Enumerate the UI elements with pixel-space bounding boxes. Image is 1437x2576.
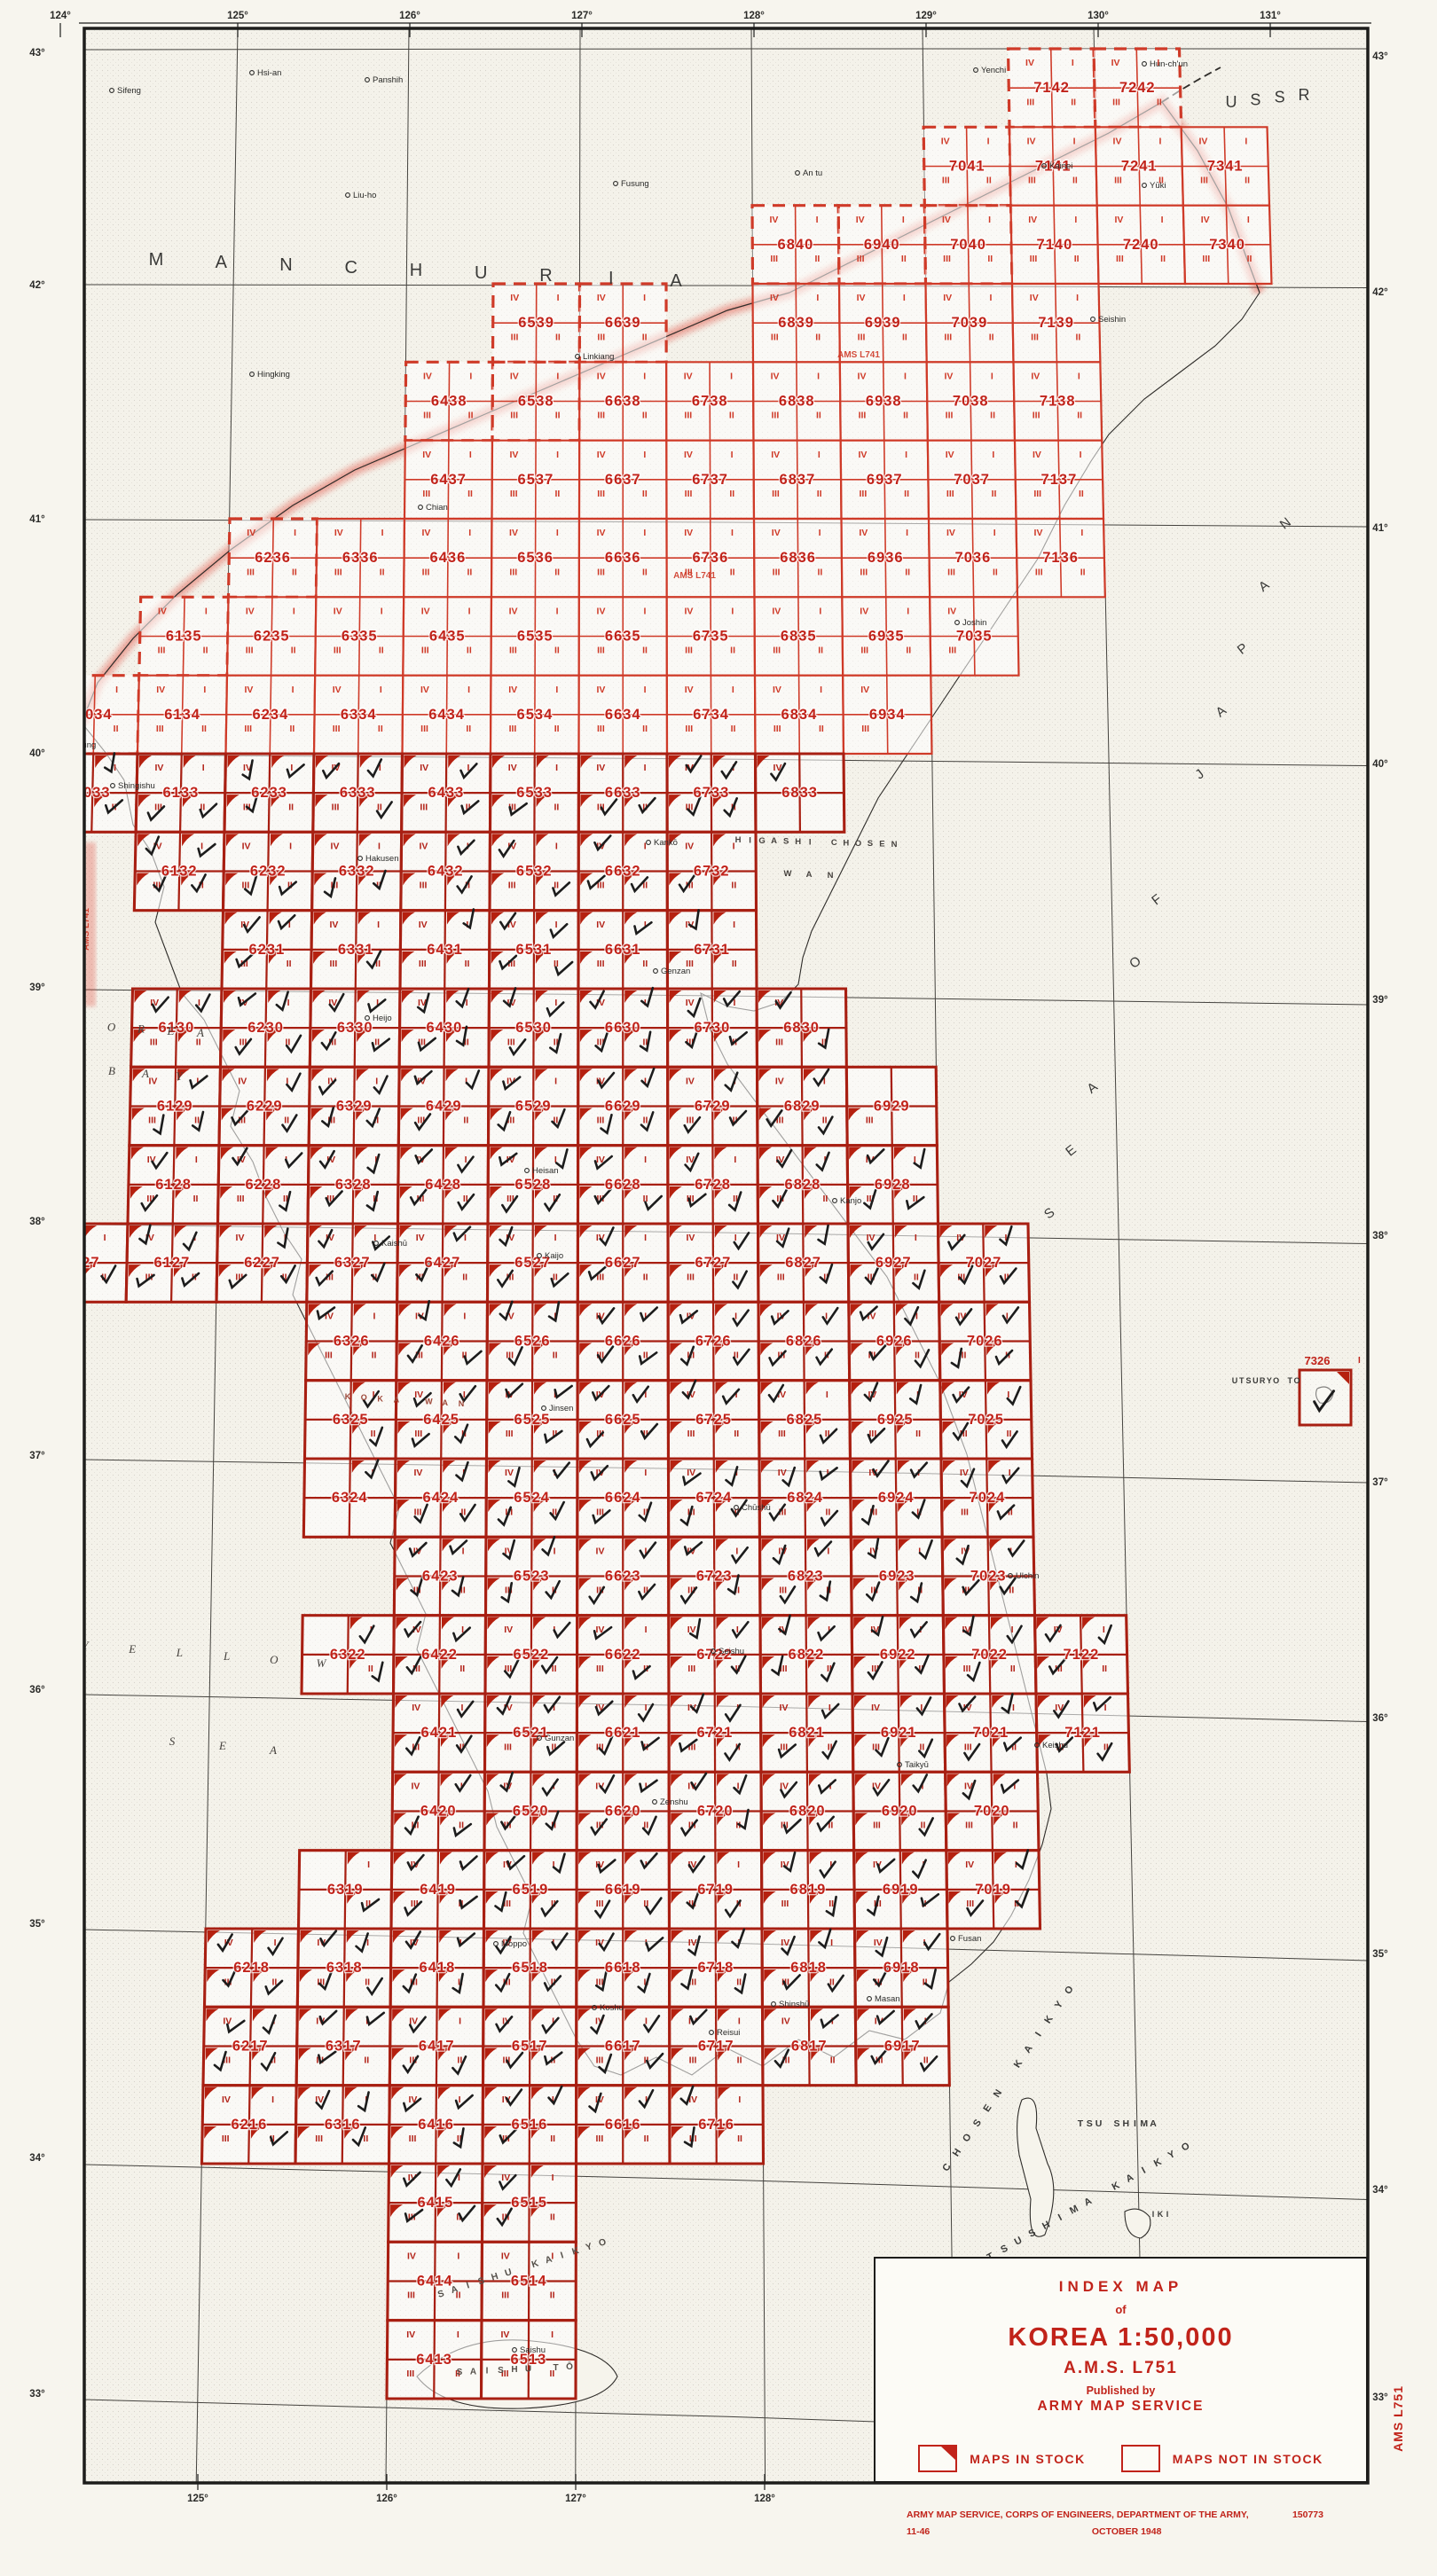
grid-cell-7122[interactable]: IVIIIIII7122 [1035, 1616, 1128, 1694]
grid-cell-6936[interactable]: IVIIIIII6936 [842, 519, 931, 597]
grid-cell-6718[interactable]: IVIIIIII6718 [670, 1929, 763, 2007]
grid-cell-7142[interactable]: IVIIIIII7142 [1009, 49, 1095, 127]
grid-cell-6830[interactable]: IVIIIII6830 [757, 989, 846, 1067]
grid-cell-6717[interactable]: IVIIIIII6717 [670, 2007, 763, 2085]
grid-cell-6628[interactable]: IVIIIIII6628 [578, 1146, 669, 1224]
grid-cell-6525[interactable]: IVIIIIII6525 [487, 1380, 578, 1459]
svg-text:6833: 6833 [781, 785, 818, 801]
svg-text:7341: 7341 [1207, 159, 1244, 175]
grid-cell-6424[interactable]: IVIIIIII6424 [395, 1459, 486, 1537]
svg-text:S: S [169, 1734, 176, 1748]
svg-text:III: III [422, 489, 430, 499]
grid-cell-6626[interactable]: IVIIIIII6626 [577, 1302, 668, 1380]
grid-cell-6635[interactable]: IVIIIIII6635 [579, 597, 667, 675]
grid-cell-6929[interactable]: III6929 [846, 1067, 937, 1145]
grid-cell-6227[interactable]: IVIIIIII6227 [216, 1224, 308, 1302]
grid-cell-7140[interactable]: IVIIIIII7140 [1011, 206, 1099, 284]
svg-text:6525: 6525 [514, 1412, 551, 1428]
svg-text:III: III [597, 1116, 605, 1126]
svg-text:III: III [158, 646, 166, 656]
grid-cell-6535[interactable]: IVIIIIII6535 [491, 597, 579, 675]
grid-cell-6426[interactable]: IVIIIIII6426 [397, 1301, 488, 1380]
grid-cell-7040[interactable]: IVIIIIII7040 [924, 206, 1012, 284]
grid-cell-6828[interactable]: IVIIIIII6828 [758, 1146, 848, 1224]
grid-cell-6927[interactable]: IVIIIIII6927 [848, 1224, 939, 1302]
grid-cell-6821[interactable]: IVIIIIII6821 [761, 1694, 853, 1772]
grid-cell-7037[interactable]: IVIIIIII7037 [928, 441, 1017, 519]
svg-text:III: III [330, 959, 338, 969]
grid-cell-6539[interactable]: IVIIIIII6539 [493, 284, 580, 362]
grid-cell-7138[interactable]: IVIIIIII7138 [1014, 362, 1103, 440]
grid-cell-7038[interactable]: IVIIIIII7038 [927, 362, 1015, 440]
svg-text:IV: IV [771, 371, 780, 381]
grid-cell-6429[interactable]: IVIIIIII6429 [398, 1067, 489, 1145]
svg-text:6538: 6538 [518, 394, 554, 410]
grid-cell-6127[interactable]: IVIIIIII6127 [126, 1224, 217, 1302]
svg-text:IV: IV [508, 763, 517, 773]
grid-cell-6421[interactable]: IVIIIIII6421 [393, 1694, 485, 1772]
grid-cell-6827[interactable]: IVIIIIII6827 [758, 1224, 849, 1302]
grid-cell-6433[interactable]: IVIIIIII6433 [402, 754, 491, 832]
grid-cell-6934[interactable]: IVIII6934 [843, 676, 931, 754]
svg-text:6621: 6621 [605, 1725, 641, 1741]
svg-text:II: II [193, 1194, 199, 1204]
grid-cell-6235[interactable]: IVIIIIII6235 [227, 597, 316, 675]
svg-text:I: I [731, 528, 734, 538]
svg-text:IV: IV [331, 841, 340, 851]
grid-cell-6629[interactable]: IVIIIIII6629 [578, 1067, 668, 1145]
grid-cell-6721[interactable]: IVIIIIII6721 [669, 1694, 761, 1772]
grid-cell-6834[interactable]: IVIIIIII6834 [755, 676, 844, 754]
grid-cell-6526[interactable]: IVIIIIII6526 [487, 1302, 577, 1381]
grid-cell-6826[interactable]: IVIIIIII6826 [758, 1302, 850, 1380]
svg-text:I: I [734, 1155, 736, 1165]
grid-cell-7019[interactable]: IVIIIIII7019 [946, 1851, 1040, 1929]
svg-text:III: III [597, 959, 605, 969]
lat-label-left: 37° [29, 1451, 44, 1461]
svg-text:II: II [643, 1272, 648, 1282]
svg-text:6435: 6435 [429, 629, 466, 645]
grid-cell-6920[interactable]: IVIIIIII6920 [853, 1772, 946, 1850]
grid-cell-7020[interactable]: IVIIIIII7020 [946, 1772, 1039, 1850]
svg-text:6936: 6936 [868, 550, 904, 566]
grid-cell-6434[interactable]: IVIIIIII6434 [403, 676, 491, 754]
svg-text:6939: 6939 [865, 315, 901, 331]
svg-text:III: III [777, 1272, 785, 1282]
grid-cell-6617[interactable]: IVIIIIII6617 [577, 2007, 670, 2085]
svg-text:II: II [989, 332, 994, 342]
grid-cell-6829[interactable]: IVIIIIII6829 [758, 1067, 848, 1145]
grid-cell-6840[interactable]: IVIIIIII6840 [752, 206, 839, 284]
grid-cell-6317[interactable]: IVIIIIII6317 [296, 2007, 390, 2085]
grid-cell-6724[interactable]: IVIIIIII6724 [669, 1459, 760, 1537]
grid-cell-6233[interactable]: IVIIIIII6233 [224, 754, 314, 832]
grid-cell-6622[interactable]: IVIIIIII6622 [577, 1616, 670, 1694]
grid-cell-6130[interactable]: IVIIIIII6130 [131, 989, 222, 1067]
grid-cell-6838[interactable]: IVIIIIII6838 [753, 362, 841, 440]
grid-cell-6723[interactable]: IVIIIIII6723 [669, 1537, 760, 1615]
grid-cell-6423[interactable]: IVIIIIII6423 [394, 1537, 486, 1616]
svg-text:II: II [990, 411, 995, 421]
grid-cell-6824[interactable]: IVIIIIII6824 [759, 1459, 851, 1537]
grid-cell-7025[interactable]: IVIIIIII7025 [940, 1381, 1033, 1459]
grid-cell-6332[interactable]: IVIIIIII6332 [312, 832, 402, 910]
grid-cell-7027[interactable]: IVIIIIII7027 [938, 1224, 1030, 1302]
grid-cell-6722[interactable]: IVIIIIII6722 [669, 1616, 761, 1694]
svg-text:II: II [378, 724, 383, 734]
svg-text:I: I [643, 371, 646, 381]
grid-cell-6735[interactable]: IVIIIIII6735 [667, 597, 755, 675]
grid-cell-7136[interactable]: IVIIIIII7136 [1017, 519, 1105, 597]
grid-cell-6427[interactable]: IVIIIIII6427 [397, 1224, 488, 1302]
grid-cell-6234[interactable]: IVIIIIII6234 [226, 676, 316, 754]
credit-date: OCTOBER 1948 [930, 2526, 1323, 2537]
grid-cell-6518[interactable]: IVIIIIII6518 [483, 1929, 577, 2007]
grid-cell-6919[interactable]: IVIIIIII6919 [854, 1851, 947, 1929]
grid-cell-6230[interactable]: IVIIIIII6230 [221, 989, 311, 1067]
grid-cell-6134[interactable]: IVIIIIII6134 [137, 676, 227, 754]
grid-cell-7021[interactable]: IVIIIIII7021 [945, 1694, 1038, 1772]
grid-cell-7241[interactable]: IVIIIIII7241 [1095, 127, 1183, 205]
grid-cell-7024[interactable]: IVIIIIII7024 [941, 1459, 1033, 1537]
grid-cell-6734[interactable]: IVIIIIII6734 [667, 676, 756, 754]
svg-text:Kaijo: Kaijo [545, 1251, 563, 1261]
grid-cell-6730[interactable]: IVIIIIII6730 [668, 989, 758, 1067]
svg-text:II: II [730, 567, 735, 577]
grid-cell-6428[interactable]: IVIIIIII6428 [398, 1146, 489, 1224]
svg-text:II: II [368, 1664, 373, 1674]
grid-cell-6737[interactable]: IVIIIIII6737 [666, 441, 754, 519]
grid-cell-6418[interactable]: IVIIIIII6418 [390, 1929, 483, 2007]
grid-cell-6623[interactable]: IVIIIIII6623 [577, 1537, 669, 1615]
lat-label-right: 34° [1372, 2185, 1387, 2196]
grid-cell-6818[interactable]: IVIIIIII6818 [762, 1929, 855, 2007]
grid-cell-6716[interactable]: IVIIIIII6716 [670, 2086, 764, 2164]
grid-cell-6938[interactable]: IVIIIIII6938 [840, 362, 928, 440]
svg-text:II: II [905, 567, 910, 577]
grid-cell-6413[interactable]: IVIIIIII6413 [387, 2321, 482, 2399]
svg-text:II: II [921, 1820, 926, 1831]
grid-cell-7137[interactable]: IVIIIIII7137 [1015, 441, 1103, 519]
grid-cell-6319[interactable]: III6319 [299, 1851, 392, 1929]
svg-text:III: III [150, 1037, 158, 1047]
svg-text:III: III [858, 332, 866, 342]
lat-label-right: 37° [1372, 1477, 1387, 1488]
grid-cell-6729[interactable]: IVIIIIII6729 [668, 1067, 758, 1145]
svg-text:I: I [380, 685, 382, 695]
svg-text:Masan: Masan [875, 1994, 900, 2004]
svg-text:I: I [551, 2329, 554, 2340]
grid-cell-6924[interactable]: IVIIIIII6924 [851, 1459, 943, 1537]
grid-cell-6616[interactable]: IVIIIIII6616 [577, 2086, 671, 2164]
grid-cell-6633[interactable]: IVIIIIII6633 [578, 754, 667, 832]
grid-cell-6921[interactable]: IVIIIIII6921 [852, 1694, 946, 1772]
grid-cell-6027[interactable]: IIIIII6027 [35, 1224, 128, 1302]
grid-cell-6631[interactable]: IVIIIIII6631 [578, 911, 668, 989]
grid-cell-6823[interactable]: IVIIIIII6823 [760, 1537, 852, 1615]
grid-cell-6731[interactable]: IVIIIIII6731 [667, 910, 757, 989]
grid-cell-6133[interactable]: IVIIIIII6133 [136, 754, 225, 832]
grid-cell-6435[interactable]: IVIIIIII6435 [403, 597, 491, 675]
grid-cell-6128[interactable]: IVIIIIII6128 [128, 1146, 219, 1224]
svg-text:6623: 6623 [605, 1569, 641, 1585]
grid-cell-6336[interactable]: IVIIIIII6336 [316, 519, 404, 597]
svg-text:III: III [597, 411, 605, 421]
grid-cell-6231[interactable]: IVIIIIII6231 [222, 911, 312, 989]
svg-text:III: III [332, 802, 340, 812]
svg-text:IV: IV [781, 2016, 790, 2026]
svg-text:III: III [334, 646, 342, 656]
grid-cell-6618[interactable]: IVIIIIII6618 [577, 1929, 670, 2007]
svg-text:II: II [730, 646, 735, 656]
grid-cell-6817[interactable]: IVIIIIII6817 [763, 2007, 857, 2085]
grid-cell-6534[interactable]: IVIIIIII6534 [491, 676, 579, 754]
grid-cell-6228[interactable]: IVIIIIII6228 [218, 1146, 310, 1224]
grid-cell-6819[interactable]: IVIIIIII6819 [762, 1851, 855, 1929]
grid-cell-7340[interactable]: IVIIIIII7340 [1183, 206, 1272, 284]
grid-cell-6425[interactable]: IVIIIIII6425 [396, 1381, 487, 1459]
grid-cell-6333[interactable]: IVIIIIII6333 [313, 754, 403, 832]
grid-cell-6720[interactable]: IVIIIIII6720 [669, 1772, 761, 1850]
grid-cell-6520[interactable]: IVIIIIII6520 [484, 1772, 577, 1850]
grid-cell-6624[interactable]: IVIIIIII6624 [577, 1459, 669, 1537]
svg-text:II: II [465, 959, 470, 969]
grid-cell-6537[interactable]: IVIIIIII6537 [492, 441, 580, 519]
grid-cell-6322[interactable]: III6322 [302, 1616, 394, 1694]
svg-text:I: I [643, 293, 646, 303]
grid-cell-6726[interactable]: IVIIIIII6726 [668, 1302, 758, 1380]
svg-text:O: O [1293, 1376, 1300, 1385]
grid-cell-6736[interactable]: IVIIIIII6736 [667, 519, 755, 597]
svg-text:II: II [986, 176, 992, 186]
grid-cell-6330[interactable]: IVIIIIII6330 [310, 989, 400, 1067]
grid-cell-6318[interactable]: IVIIIIII6318 [297, 1929, 391, 2007]
grid-cell-6527[interactable]: IVIIIIII6527 [488, 1224, 578, 1302]
grid-cell-6630[interactable]: IVIIIIII6630 [578, 988, 668, 1067]
grid-cell-6531[interactable]: IVIIIIII6531 [490, 911, 579, 989]
svg-text:U: U [1252, 1376, 1259, 1385]
grid-cell-6727[interactable]: IVIIIIII6727 [668, 1224, 758, 1302]
margin-series-label: AMS L751 [1391, 2385, 1405, 2452]
grid-cell-6422[interactable]: IVIIIIII6422 [394, 1616, 486, 1694]
svg-text:II: II [823, 1194, 828, 1204]
svg-text:III: III [510, 411, 518, 421]
grid-cell-6327[interactable]: IVIIIIII6327 [307, 1224, 398, 1302]
svg-text:7021: 7021 [973, 1725, 1009, 1741]
grid-cell-6528[interactable]: IVIIIIII6528 [488, 1146, 578, 1224]
grid-cell-6837[interactable]: IVIIIIII6837 [754, 441, 842, 519]
grid-cell-6415[interactable]: IVIIIIII6415 [389, 2164, 483, 2242]
svg-text:IV: IV [244, 685, 253, 695]
grid-cell-6524[interactable]: IVIIIIII6524 [486, 1459, 577, 1537]
svg-text:I: I [555, 763, 558, 773]
grid-cell-6923[interactable]: IVIIIIII6923 [851, 1537, 943, 1615]
grid-cell-6438[interactable]: IVIIIIII6438 [405, 362, 493, 440]
svg-text:II: II [1072, 176, 1078, 186]
grid-cell-6515[interactable]: IVIIIIII6515 [483, 2164, 577, 2242]
grid-cell-6232[interactable]: IVIIIIII6232 [224, 832, 313, 910]
svg-text:6630: 6630 [605, 1020, 641, 1036]
svg-text:IV: IV [500, 2329, 509, 2340]
grid-cell-6627[interactable]: IVIIIIII6627 [577, 1224, 668, 1302]
svg-text:6531: 6531 [516, 942, 553, 958]
grid-cell-6431[interactable]: IVIIIIII6431 [400, 909, 490, 989]
grid-cell-7341[interactable]: IVIIIIII7341 [1182, 127, 1269, 205]
grid-cell-6918[interactable]: IVIIIIII6918 [855, 1929, 949, 2007]
grid-cell-6825[interactable]: IVIIIIII6825 [759, 1381, 851, 1459]
grid-cell-6620[interactable]: IVIIIIII6620 [577, 1772, 669, 1850]
svg-text:I: I [907, 606, 909, 616]
svg-text:6420: 6420 [420, 1804, 457, 1820]
grid-cell-6835[interactable]: IVIIIIII6835 [755, 597, 844, 675]
grid-cell-6419[interactable]: IVIIIIII6419 [391, 1851, 484, 1929]
grid-cell-7026[interactable]: IVIIIIII7026 [939, 1302, 1031, 1380]
svg-text:R: R [1260, 1376, 1266, 1385]
svg-text:6628: 6628 [605, 1177, 641, 1193]
grid-cell-6519[interactable]: IVIIIIII6519 [484, 1851, 577, 1929]
grid-cell-6940[interactable]: IVIIIIII6940 [838, 206, 925, 284]
grid-cell-6621[interactable]: IVIIIIII6621 [577, 1694, 669, 1772]
grid-cell-6236[interactable]: IVIIIIII6236 [229, 519, 318, 597]
grid-cell-6033[interactable]: IVIIIIII6033 [47, 753, 137, 832]
svg-text:II: II [468, 411, 474, 421]
grid-cell-6836[interactable]: IVIIIIII6836 [754, 519, 842, 597]
grid-cell-7022[interactable]: IVIIIIII7022 [943, 1616, 1036, 1694]
lon-label-top: 125° [227, 11, 248, 21]
grid-cell-6925[interactable]: IVIIIIII6925 [850, 1381, 941, 1459]
grid-cell-6732[interactable]: IVIIIIII6732 [667, 832, 756, 910]
grid-cell-6135[interactable]: IVIIIIII6135 [139, 597, 229, 675]
grid-cell-7036[interactable]: IVIIIIII7036 [929, 519, 1017, 597]
grid-cell-6414[interactable]: IVIIIIII6414 [388, 2242, 483, 2320]
svg-text:6720: 6720 [697, 1804, 734, 1820]
svg-text:II: II [904, 489, 909, 499]
grid-cell-6316[interactable]: IVIIIIII6316 [295, 2086, 389, 2164]
svg-text:II: II [114, 724, 119, 734]
svg-text:I: I [731, 606, 734, 616]
svg-text:6416: 6416 [418, 2117, 454, 2133]
svg-text:III: III [66, 802, 74, 812]
grid-cell-6432[interactable]: IVIIIIII6432 [401, 832, 491, 910]
grid-cell-6216[interactable]: IVIIIIII6216 [202, 2086, 297, 2164]
svg-text:A: A [1150, 2118, 1157, 2129]
grid-cell-6417[interactable]: IVIIIIII6417 [389, 2007, 483, 2085]
grid-cell-6625[interactable]: IVIIIIII6625 [577, 1381, 669, 1459]
grid-cell-6522[interactable]: IVIIIIII6522 [485, 1616, 577, 1694]
grid-cell-6516[interactable]: IVIIIIII6516 [483, 2086, 577, 2164]
svg-text:6826: 6826 [786, 1334, 822, 1350]
svg-text:6537: 6537 [518, 472, 554, 488]
grid-cell-6637[interactable]: IVIIIIII6637 [579, 441, 667, 519]
svg-text:IV: IV [859, 528, 868, 538]
grid-cell-6639[interactable]: IVIIIIII6639 [579, 284, 666, 362]
svg-text:II: II [290, 724, 295, 734]
grid-cell-6324[interactable]: I6324 [303, 1459, 396, 1537]
svg-text:6234: 6234 [253, 707, 289, 723]
grid-cell-6538[interactable]: IVIIIIII6538 [492, 362, 579, 440]
grid-cell-6331[interactable]: IVIIIIII6331 [311, 911, 401, 989]
svg-text:I: I [732, 685, 734, 695]
grid-cell-7041[interactable]: IVIIIIII7041 [923, 127, 1010, 205]
grid-cell-6820[interactable]: IVIIIIII6820 [761, 1772, 854, 1850]
svg-text:IV: IV [510, 371, 519, 381]
grid-cell-6937[interactable]: IVIIIIII6937 [841, 441, 929, 519]
grid-cell-6229[interactable]: IVIIIIII6229 [219, 1067, 310, 1145]
grid-cell-6917[interactable]: IVIIIIII6917 [855, 2007, 949, 2086]
grid-cell-6328[interactable]: IVIIIIII6328 [308, 1146, 398, 1224]
grid-cell-6530[interactable]: IVIIIIII6530 [489, 988, 578, 1067]
grid-cell-6416[interactable]: IVIIIIII6416 [389, 2086, 483, 2164]
grid-cell-6728[interactable]: IVIIIIII6728 [668, 1146, 758, 1224]
grid-cell-6334[interactable]: IVIIIIII6334 [314, 676, 403, 754]
svg-text:II: II [816, 411, 821, 421]
grid-cell-6725[interactable]: IVIIIIII6725 [668, 1381, 759, 1459]
grid-cell-6335[interactable]: IVIIIIII6335 [315, 597, 404, 675]
grid-cell-6738[interactable]: IVIIIIII6738 [666, 362, 753, 440]
grid-cell-6420[interactable]: IVIIIIII6420 [392, 1772, 485, 1850]
grid-cell-6619[interactable]: IVIIIIII6619 [577, 1851, 670, 1929]
grid-cell-6533[interactable]: IVIIIIII6533 [491, 754, 579, 832]
grid-cell-6922[interactable]: IVIIIIII6922 [852, 1616, 944, 1694]
grid-cell-6833[interactable]: IV6833 [756, 754, 844, 832]
svg-text:I: I [816, 293, 819, 303]
grid-cell-6437[interactable]: IVIIIIII6437 [404, 441, 492, 519]
grid-cell-6517[interactable]: IVIIIIII6517 [483, 2007, 577, 2085]
grid-cell-6733[interactable]: IVIIIIII6733 [667, 754, 756, 832]
grid-cell-6636[interactable]: IVIIIIII6636 [579, 519, 667, 597]
svg-text:7022: 7022 [971, 1647, 1008, 1663]
grid-cell-6928[interactable]: IVIIIIII6928 [847, 1146, 938, 1224]
svg-text:III: III [946, 489, 954, 499]
grid-cell-6430[interactable]: IVIIIIII6430 [399, 989, 489, 1067]
grid-cell-6634[interactable]: IVIIIIII6634 [579, 676, 668, 754]
grid-cell-6926[interactable]: IVIIIIII6926 [849, 1302, 940, 1380]
svg-text:I: I [738, 2016, 741, 2026]
svg-text:I: I [377, 920, 380, 930]
grid-cell-6935[interactable]: IVIIIIII6935 [842, 597, 931, 675]
svg-text:M: M [1140, 2118, 1148, 2129]
grid-cell-6218[interactable]: IVIIIIII6218 [205, 1929, 299, 2007]
grid-cell-6436[interactable]: IVIIIIII6436 [404, 519, 491, 597]
grid-cell-6513[interactable]: IVIIIIII6513 [482, 2321, 577, 2399]
svg-text:I: I [556, 606, 559, 616]
svg-text:III: III [873, 1820, 881, 1831]
grid-cell-6217[interactable]: IVIIIIII6217 [203, 2007, 297, 2085]
grid-cell-6326[interactable]: IVIIIIII6326 [306, 1302, 397, 1380]
svg-text:Hingking: Hingking [257, 370, 290, 380]
grid-cell-6822[interactable]: IVIIIIII6822 [760, 1616, 852, 1694]
grid-cell-6329[interactable]: IVIIIIII6329 [309, 1067, 399, 1145]
grid-cell-6532[interactable]: IVIIIIII6532 [490, 832, 578, 910]
grid-cell-6719[interactable]: IVIIIIII6719 [669, 1851, 762, 1929]
svg-text:A: A [141, 1067, 149, 1080]
svg-text:IV: IV [874, 1938, 883, 1948]
grid-cell-6638[interactable]: IVIIIIII6638 [579, 362, 666, 440]
grid-cell-7121[interactable]: IVIIIIII7121 [1036, 1694, 1129, 1773]
grid-cell-6529[interactable]: IVIIIIII6529 [489, 1067, 578, 1145]
svg-text:III: III [511, 332, 519, 342]
grid-cell-6839[interactable]: IVIIIIII6839 [753, 284, 840, 362]
grid-cell-7240[interactable]: IVIIIIII7240 [1097, 206, 1185, 284]
grid-cell-7139[interactable]: IVIIIIII7139 [1012, 284, 1100, 362]
grid-cell-7035[interactable]: IVIII7035 [930, 597, 1018, 675]
grid-cell-6523[interactable]: IVIIIIII6523 [486, 1537, 577, 1615]
grid-cell-6132[interactable]: IVIIIIII6132 [134, 832, 224, 910]
grid-cell-7039[interactable]: IVIIIIII7039 [926, 284, 1014, 362]
svg-text:Hun-ch'un: Hun-ch'un [1150, 59, 1188, 69]
grid-cell-6536[interactable]: IVIIIIII6536 [491, 519, 579, 597]
svg-text:II: II [1157, 97, 1162, 107]
